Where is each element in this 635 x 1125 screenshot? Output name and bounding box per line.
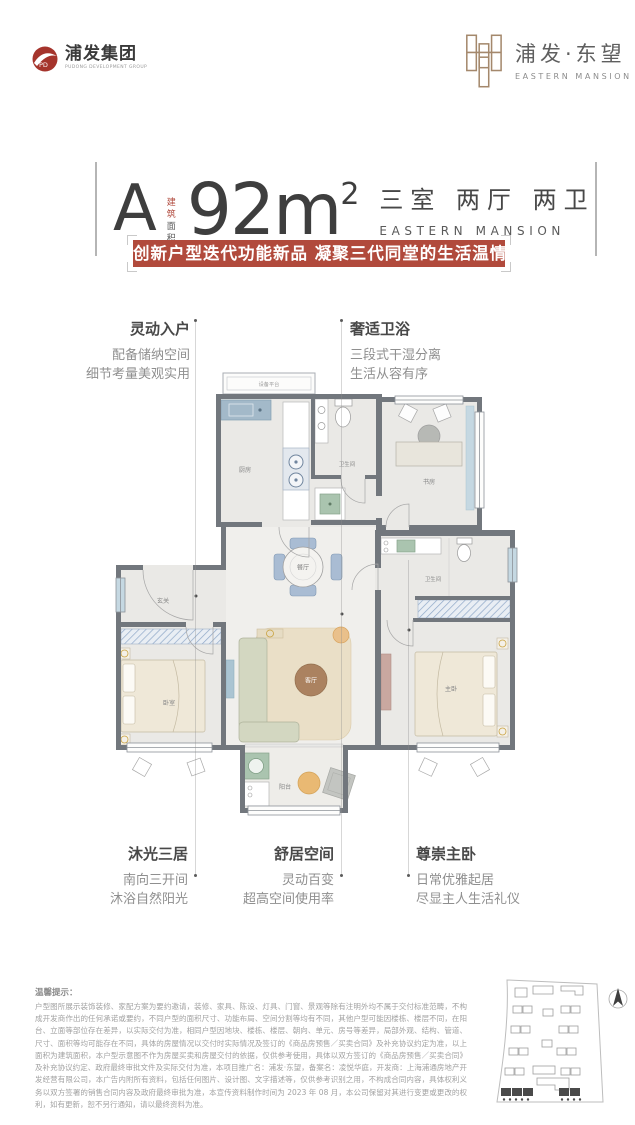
- leader-dot: [340, 319, 343, 322]
- bracket-left-icon: [95, 162, 97, 256]
- callout-line: 日常优雅起居: [416, 871, 566, 890]
- banner-corner-mark: [127, 235, 137, 245]
- callout-line: 配备储纳空间: [50, 346, 190, 365]
- compass-icon: [609, 988, 627, 1008]
- svg-text:PD: PD: [39, 61, 48, 69]
- brand-logo-subtitle: EASTERN MANSION: [515, 72, 632, 81]
- banner-corner-mark: [501, 235, 511, 245]
- leader-line: [195, 322, 196, 876]
- callout-light: 沐光三居 南向三开间 沐浴自然阳光: [48, 843, 188, 909]
- callout-title: 舒居空间: [192, 843, 334, 864]
- unit-type-label: A: [113, 177, 157, 241]
- room-label-living: 客厅: [305, 677, 317, 685]
- leader-line: [408, 560, 409, 876]
- property-poster: { "header": { "group_logo": {"title": "浦…: [0, 0, 635, 1125]
- disclaimer-title: 温馨提示：: [35, 986, 467, 998]
- callout-master: 尊崇主卧 日常优雅起居 尽显主人生活礼仪: [416, 843, 566, 909]
- bedroom-furniture: [119, 648, 205, 745]
- leader-dot: [194, 319, 197, 322]
- leader-dot: [340, 874, 343, 877]
- callout-line: 沐浴自然阳光: [48, 890, 188, 909]
- site-map: [487, 970, 632, 1120]
- group-logo-subtitle: PUDONG DEVELOPMENT GROUP: [65, 65, 147, 70]
- callout-line: 三段式干湿分离: [350, 346, 500, 365]
- living-furniture: [226, 627, 351, 742]
- room-label-foyer: 玄关: [157, 597, 169, 605]
- banner-corner-mark: [501, 262, 511, 272]
- brand-logo-name: 浦发·东望: [515, 42, 632, 66]
- leader-dot: [194, 874, 197, 877]
- leader-line: [341, 322, 342, 876]
- callout-title: 奢适卫浴: [350, 318, 500, 339]
- brand-logo: 浦发·东望 EASTERN MANSION: [463, 32, 632, 90]
- area-superscript: 2: [340, 177, 359, 212]
- room-label-kitchen: 厨房: [239, 466, 251, 474]
- callout-title: 灵动入户: [50, 318, 190, 339]
- area-value: 92m2: [187, 174, 360, 245]
- disclaimer: 温馨提示： 户型图所展示装饰装修、家配方案为要约邀请，装修、家具、陈设、灯具、门…: [35, 986, 467, 1111]
- callout-title: 尊崇主卧: [416, 843, 566, 864]
- slogan-text: 创新户型迭代功能新品 凝聚三代同堂的生活温情: [133, 244, 507, 263]
- room-label-master: 主卧: [445, 685, 457, 693]
- callout-line: 超高空间使用率: [192, 890, 334, 909]
- group-logo: PD 浦发集团 PUDONG DEVELOPMENT GROUP: [30, 44, 147, 74]
- bracket-right-icon: [595, 162, 597, 256]
- room-label-dining: 餐厅: [297, 564, 309, 572]
- banner-corner-mark: [127, 262, 137, 272]
- group-logo-icon: PD: [30, 44, 60, 74]
- layout-subtext: EASTERN MANSION: [379, 224, 594, 238]
- floorplan: 设备平台: [113, 372, 523, 837]
- room-label-study: 书房: [423, 478, 435, 486]
- room-label-equipment: 设备平台: [259, 380, 280, 388]
- area-note-top: 建 筑: [167, 197, 179, 221]
- layout-text: 三室 两厅 两卫: [379, 180, 594, 215]
- callout-line: 南向三开间: [48, 871, 188, 890]
- room-label-bedroom: 卧室: [163, 699, 175, 707]
- disclaimer-body: 户型图所展示装饰装修、家配方案为要约邀请，装修、家具、陈设、灯具、门窗、景观等除…: [35, 1001, 467, 1111]
- room-label-balcony: 阳台: [279, 783, 291, 791]
- group-logo-name: 浦发集团: [65, 44, 137, 64]
- callout-space: 舒居空间 灵动百变 超高空间使用率: [192, 843, 334, 909]
- room-label-bathroom2: 卫生间: [425, 575, 441, 583]
- callout-line: 灵动百变: [192, 871, 334, 890]
- callout-line: 尽显主人生活礼仪: [416, 890, 566, 909]
- callout-title: 沐光三居: [48, 843, 188, 864]
- leader-dot: [407, 874, 410, 877]
- slogan-banner: 创新户型迭代功能新品 凝聚三代同堂的生活温情: [133, 240, 505, 267]
- equipment-platform: 设备平台: [223, 373, 315, 394]
- brand-logo-icon: [463, 32, 503, 90]
